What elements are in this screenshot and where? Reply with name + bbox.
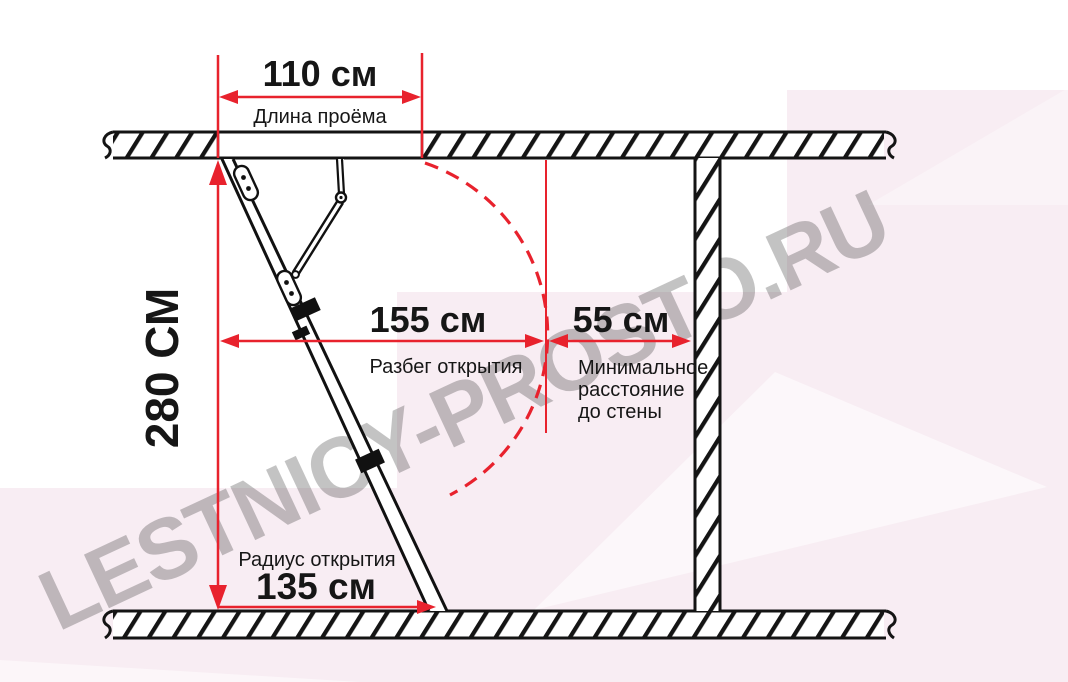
dim-wall-distance-label-line3: до стены xyxy=(578,401,662,423)
strut-foot-pin xyxy=(292,271,299,278)
floor xyxy=(104,611,895,638)
dim-wall-distance-value: 55 см xyxy=(573,299,670,340)
ceiling-hatch-left xyxy=(113,134,218,158)
floor-hatch xyxy=(113,613,884,637)
wall-hatch xyxy=(697,158,719,611)
dim-ceiling-height-value: 280 СМ xyxy=(136,288,188,448)
dim-opening-span-value: 155 см xyxy=(370,299,487,340)
attic-ladder-dimensions-diagram: LESTNICY-PROSTO.RU xyxy=(0,0,1068,682)
ceiling-hatch-right xyxy=(422,134,884,158)
dim-opening-length-value: 110 см xyxy=(263,53,378,94)
plate-hole xyxy=(289,291,294,296)
plate-hole xyxy=(246,186,251,191)
wall xyxy=(695,158,720,611)
dim-wall-distance-label-line1: Минимальное xyxy=(578,357,708,379)
dim-opening-radius-value: 135 см xyxy=(256,566,376,607)
dim-wall-distance-label-line2: расстояние xyxy=(578,379,684,401)
plate-hole xyxy=(284,280,289,285)
dim-opening-length-label: Длина проёма xyxy=(253,106,387,128)
diagram-canvas: LESTNICY-PROSTO.RU xyxy=(0,0,1068,682)
strut-hinge-pin xyxy=(339,196,342,199)
plate-hole xyxy=(241,175,246,180)
dim-opening-span-label: Разбег открытия xyxy=(370,356,523,378)
